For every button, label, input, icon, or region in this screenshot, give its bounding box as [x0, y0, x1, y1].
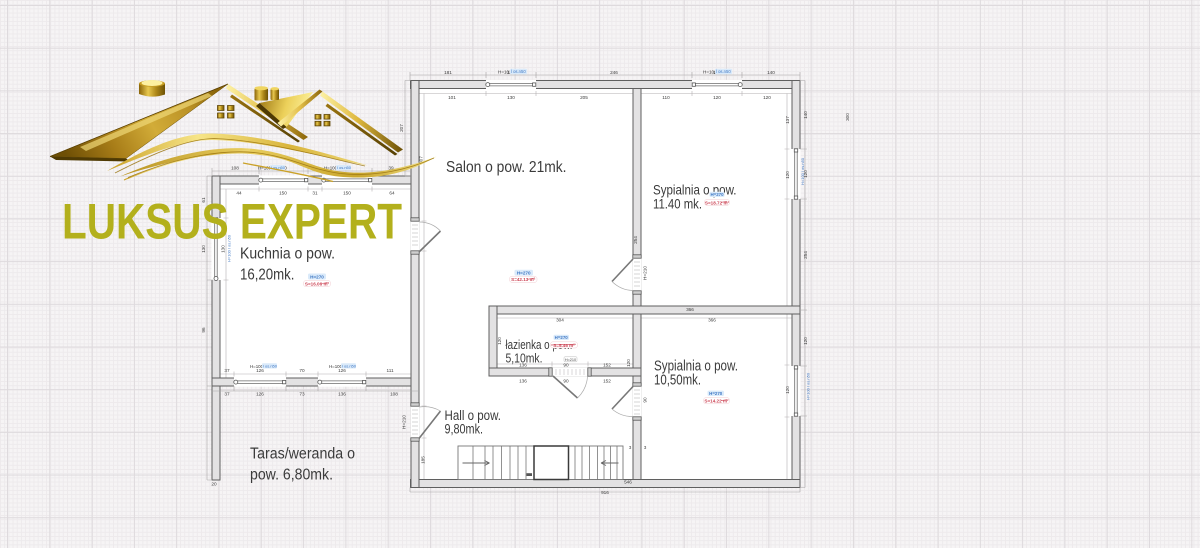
svg-text:140: 140	[767, 70, 775, 75]
svg-text:110: 110	[662, 95, 670, 100]
svg-text:H=102: H=102	[498, 70, 512, 75]
svg-text:10,50mk.: 10,50mk.	[654, 372, 701, 389]
svg-text:108: 108	[231, 166, 239, 171]
svg-text:181: 181	[444, 70, 452, 75]
svg-text:20: 20	[211, 482, 217, 487]
svg-text:37: 37	[224, 392, 230, 397]
svg-text:152: 152	[603, 379, 611, 384]
svg-text:137: 137	[785, 116, 790, 124]
svg-text:101: 101	[448, 95, 456, 100]
svg-text:H=100: H=100	[250, 364, 264, 369]
svg-text:S=42.13 m²: S=42.13 m²	[511, 277, 536, 282]
svg-text:S=18.72 m²: S=18.72 m²	[705, 200, 730, 205]
svg-text:5,10mk.: 5,10mk.	[506, 351, 543, 366]
svg-text:H=270: H=270	[709, 391, 723, 396]
svg-text:136: 136	[519, 379, 527, 384]
svg-text:126: 126	[256, 392, 264, 397]
svg-text:l os.n50: l os.n50	[342, 364, 357, 369]
svg-text:120: 120	[785, 386, 790, 394]
svg-text:136: 136	[338, 392, 346, 397]
svg-text:LUKSUS EXPERT: LUKSUS EXPERT	[62, 194, 402, 250]
svg-text:16,20mk.: 16,20mk.	[240, 267, 295, 284]
svg-text:3: 3	[629, 445, 632, 450]
svg-text:11.40 mk.: 11.40 mk.	[653, 196, 702, 212]
svg-text:108: 108	[390, 392, 398, 397]
svg-text:300: 300	[845, 113, 850, 121]
svg-text:916: 916	[601, 490, 609, 495]
svg-text:120: 120	[713, 95, 721, 100]
svg-text:H=100: H=100	[329, 364, 343, 369]
svg-text:H=100 l os.n50: H=100 l os.n50	[806, 372, 811, 400]
svg-text:H=210: H=210	[643, 266, 648, 280]
svg-text:90: 90	[563, 379, 569, 384]
svg-text:H=100 l os.n50: H=100 l os.n50	[800, 157, 805, 185]
svg-text:90: 90	[563, 363, 569, 368]
svg-text:Taras/weranda o: Taras/weranda o	[250, 446, 355, 463]
svg-text:120: 120	[763, 95, 771, 100]
svg-text:120: 120	[497, 337, 502, 345]
svg-text:120: 120	[803, 337, 808, 345]
svg-text:73: 73	[299, 392, 305, 397]
svg-text:S=14.22 m²: S=14.22 m²	[704, 399, 729, 404]
svg-text:3: 3	[644, 445, 647, 450]
svg-text:H=210: H=210	[565, 358, 576, 362]
svg-text:366: 366	[708, 318, 716, 323]
svg-text:l os.n50: l os.n50	[263, 364, 278, 369]
svg-text:205: 205	[580, 95, 588, 100]
svg-text:Salon o pow. 21mk.: Salon o pow. 21mk.	[446, 159, 567, 176]
svg-text:H=102: H=102	[703, 70, 717, 75]
svg-text:111: 111	[386, 368, 394, 373]
svg-text:l os.n50: l os.n50	[337, 165, 352, 170]
svg-text:pow. 6,80mk.: pow. 6,80mk.	[250, 467, 333, 484]
svg-text:9,80mk.: 9,80mk.	[445, 422, 484, 437]
svg-text:140: 140	[803, 111, 808, 119]
svg-text:246: 246	[610, 70, 618, 75]
svg-text:254: 254	[803, 251, 808, 259]
svg-text:l os.n50: l os.n50	[716, 69, 731, 74]
svg-text:37: 37	[224, 368, 230, 373]
svg-text:H=270: H=270	[710, 192, 724, 197]
svg-text:130: 130	[507, 95, 515, 100]
svg-text:366: 366	[686, 307, 694, 312]
svg-text:S=5.46 m²: S=5.46 m²	[553, 343, 575, 348]
svg-text:254: 254	[633, 236, 638, 244]
svg-text:H=270: H=270	[310, 274, 324, 279]
svg-text:S=16.06 m²: S=16.06 m²	[305, 282, 330, 287]
svg-text:H=270: H=270	[517, 271, 531, 276]
svg-text:H=210: H=210	[402, 415, 407, 429]
svg-text:120: 120	[785, 171, 790, 179]
svg-text:152: 152	[603, 363, 611, 368]
svg-text:304: 304	[556, 318, 564, 323]
svg-text:120: 120	[626, 359, 631, 367]
svg-text:207: 207	[399, 124, 404, 132]
svg-text:l os.n50: l os.n50	[511, 69, 526, 74]
svg-text:546: 546	[624, 480, 632, 485]
svg-text:H=270: H=270	[555, 335, 569, 340]
svg-text:70: 70	[299, 368, 305, 373]
svg-text:90: 90	[643, 397, 648, 403]
svg-text:185: 185	[421, 456, 426, 464]
svg-text:96: 96	[201, 327, 206, 333]
